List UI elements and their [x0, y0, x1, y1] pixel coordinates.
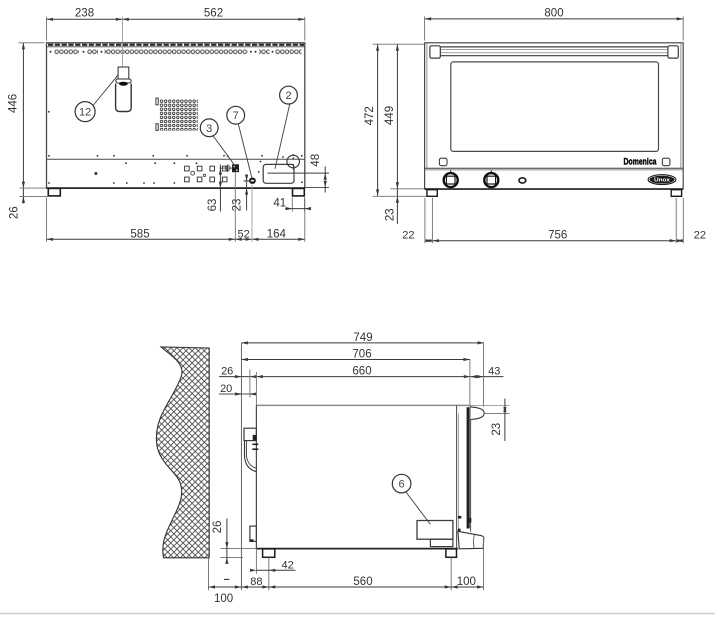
- svg-text:26: 26: [212, 521, 224, 534]
- svg-text:100: 100: [457, 576, 476, 588]
- svg-text:472: 472: [364, 106, 376, 125]
- svg-text:42: 42: [281, 559, 293, 571]
- svg-text:164: 164: [267, 228, 287, 240]
- svg-text:7: 7: [233, 110, 239, 122]
- svg-text:560: 560: [353, 576, 372, 588]
- svg-text:800: 800: [544, 7, 563, 19]
- svg-text:3: 3: [206, 123, 212, 135]
- svg-text:12: 12: [79, 107, 91, 119]
- svg-text:41: 41: [273, 198, 286, 210]
- svg-text:22: 22: [402, 229, 414, 241]
- svg-text:100: 100: [214, 593, 233, 605]
- svg-text:23: 23: [491, 423, 503, 436]
- svg-text:Unox: Unox: [654, 178, 671, 184]
- svg-text:23: 23: [231, 199, 243, 212]
- svg-text:52: 52: [237, 228, 249, 240]
- svg-text:22: 22: [694, 229, 706, 241]
- svg-text:26: 26: [221, 366, 233, 378]
- svg-text:63: 63: [207, 199, 219, 212]
- svg-text:43: 43: [488, 366, 500, 378]
- svg-text:449: 449: [384, 106, 396, 125]
- svg-text:6: 6: [399, 479, 405, 491]
- svg-text:2: 2: [285, 90, 291, 102]
- svg-text:562: 562: [204, 8, 223, 20]
- svg-text:756: 756: [548, 229, 567, 241]
- svg-text:Domenica: Domenica: [624, 156, 658, 166]
- svg-text:446: 446: [8, 94, 20, 113]
- svg-text:48: 48: [310, 154, 322, 167]
- svg-text:238: 238: [75, 8, 94, 20]
- svg-text:749: 749: [353, 332, 372, 344]
- svg-text:660: 660: [352, 366, 371, 378]
- svg-text:88: 88: [250, 576, 262, 588]
- svg-text:585: 585: [130, 228, 149, 240]
- svg-text:23: 23: [384, 208, 396, 221]
- svg-text:706: 706: [352, 349, 371, 361]
- svg-text:20: 20: [220, 383, 232, 395]
- svg-text:26: 26: [8, 206, 20, 219]
